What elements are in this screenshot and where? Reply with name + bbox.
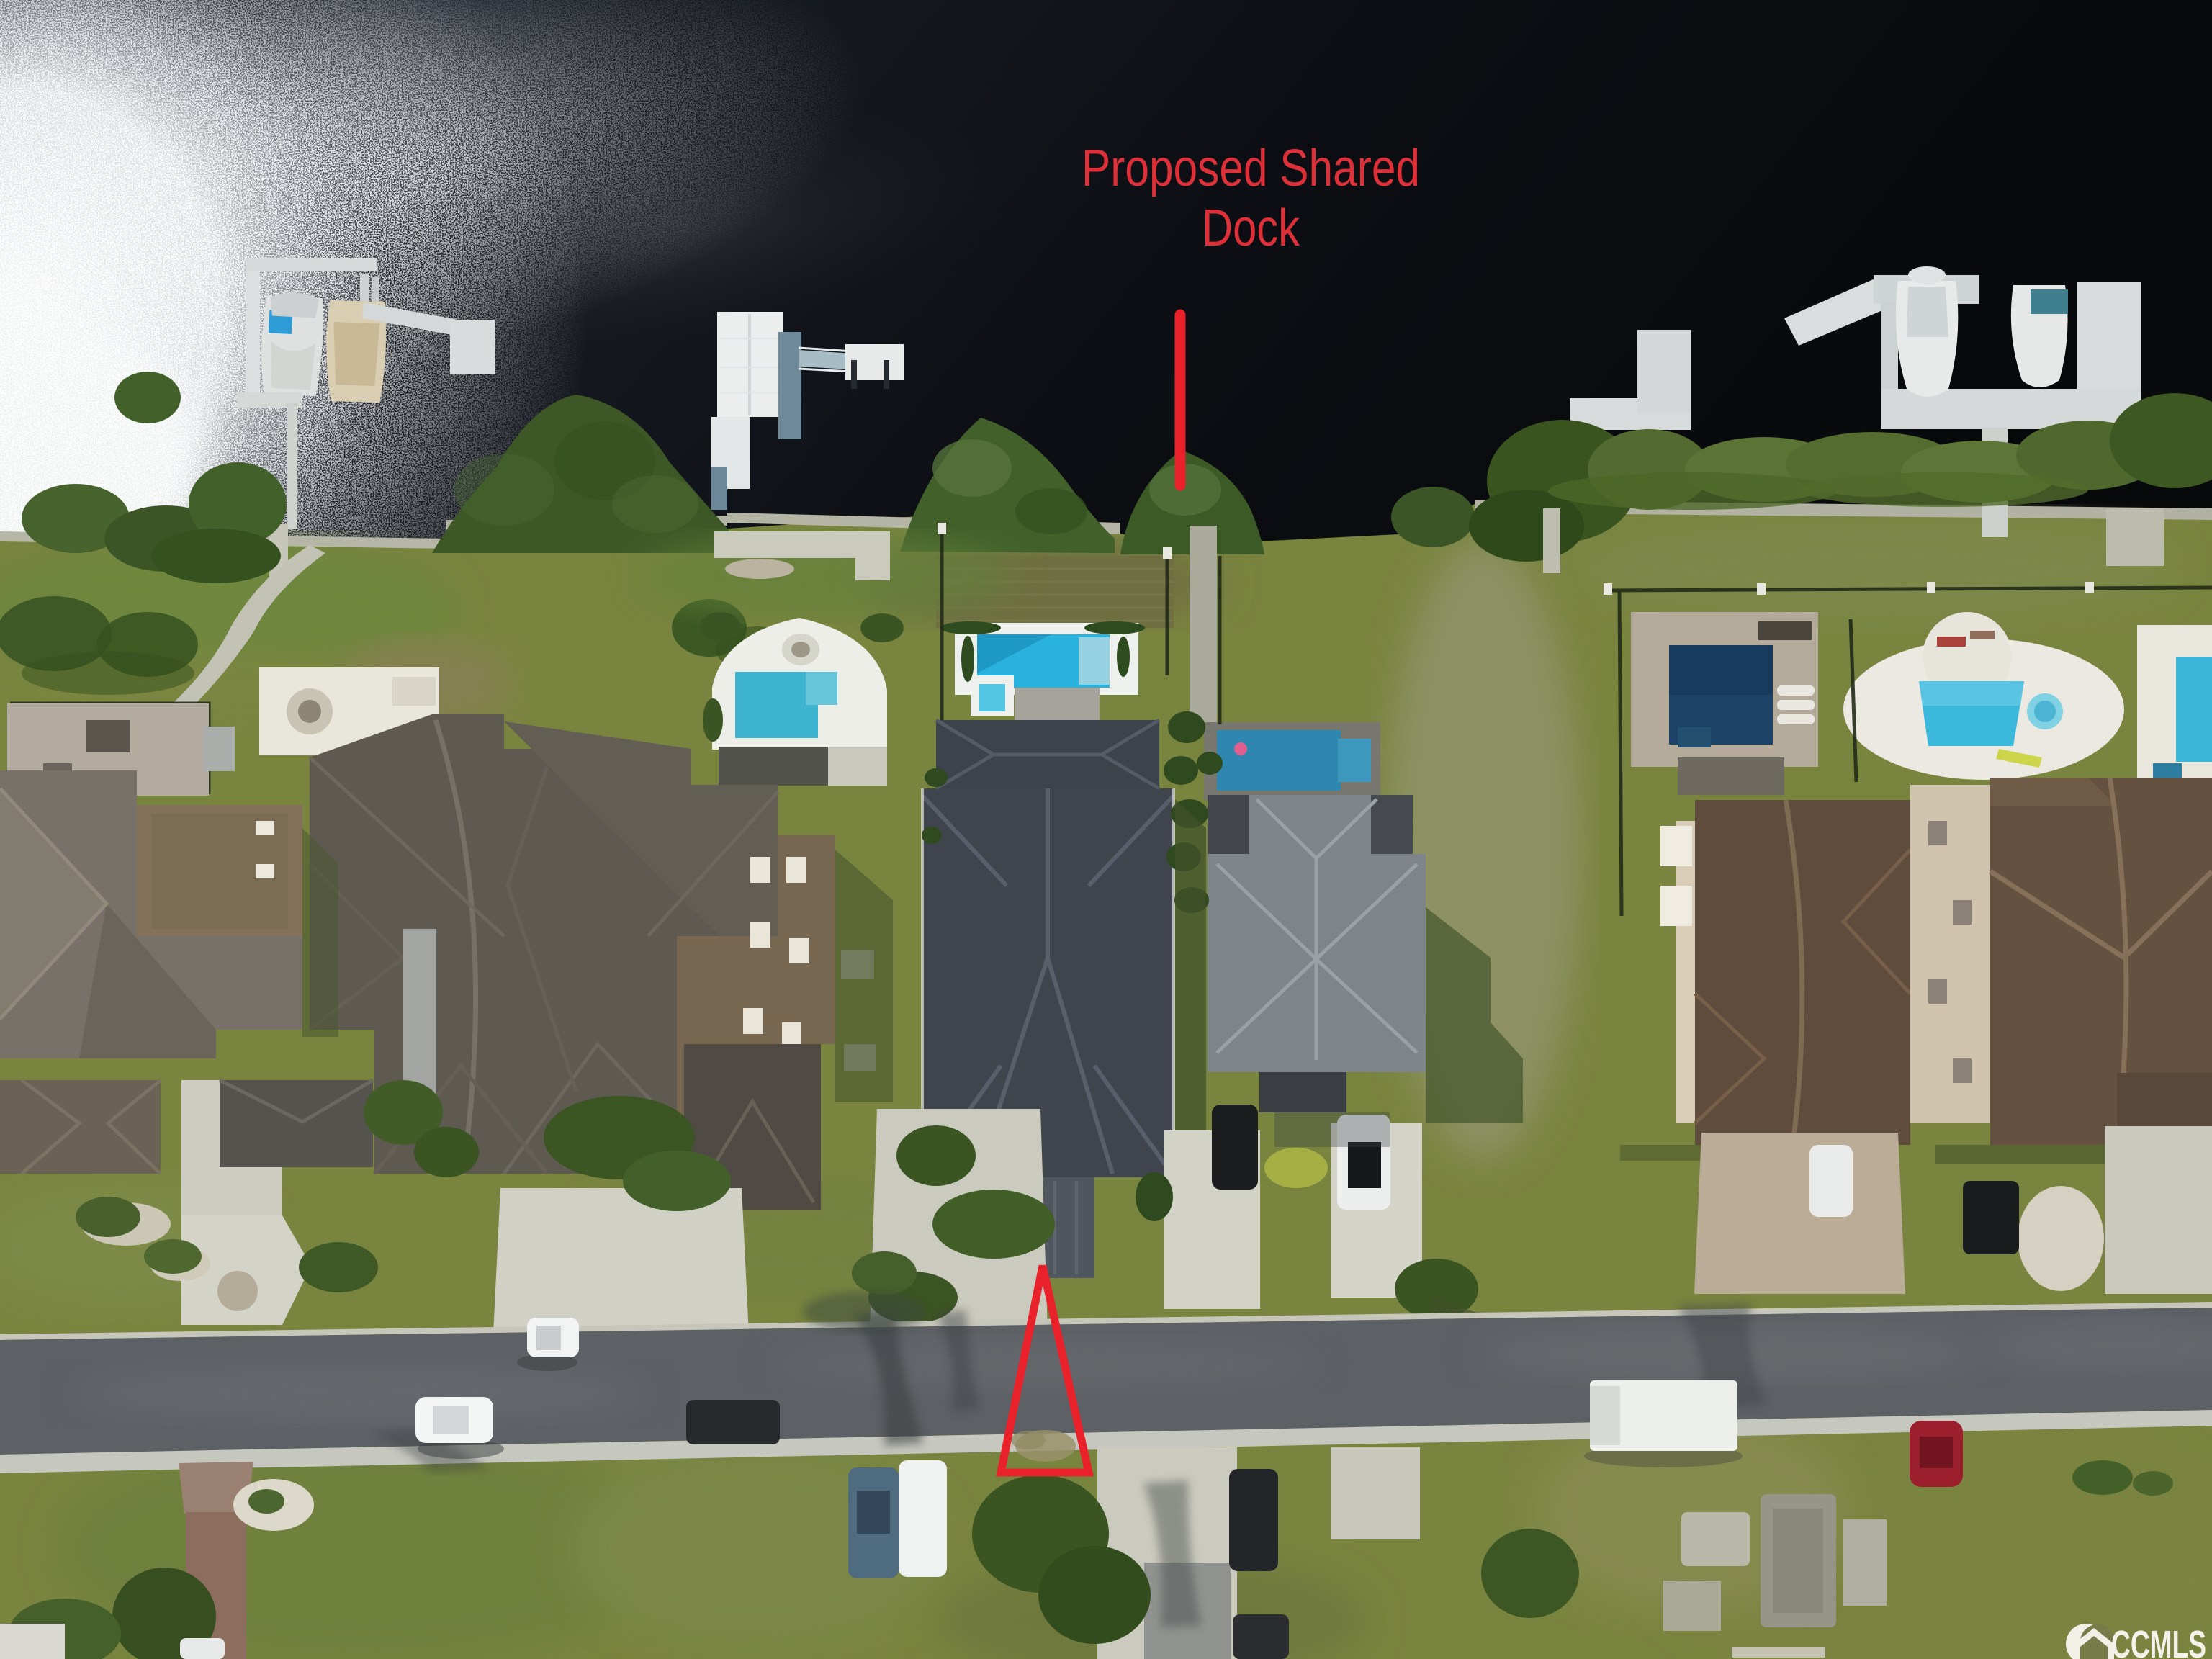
svg-text:CCMLS: CCMLS [2111, 1623, 2206, 1659]
svg-text:Proposed Shared: Proposed Shared [1082, 140, 1420, 197]
svg-text:Dock: Dock [1202, 199, 1300, 257]
